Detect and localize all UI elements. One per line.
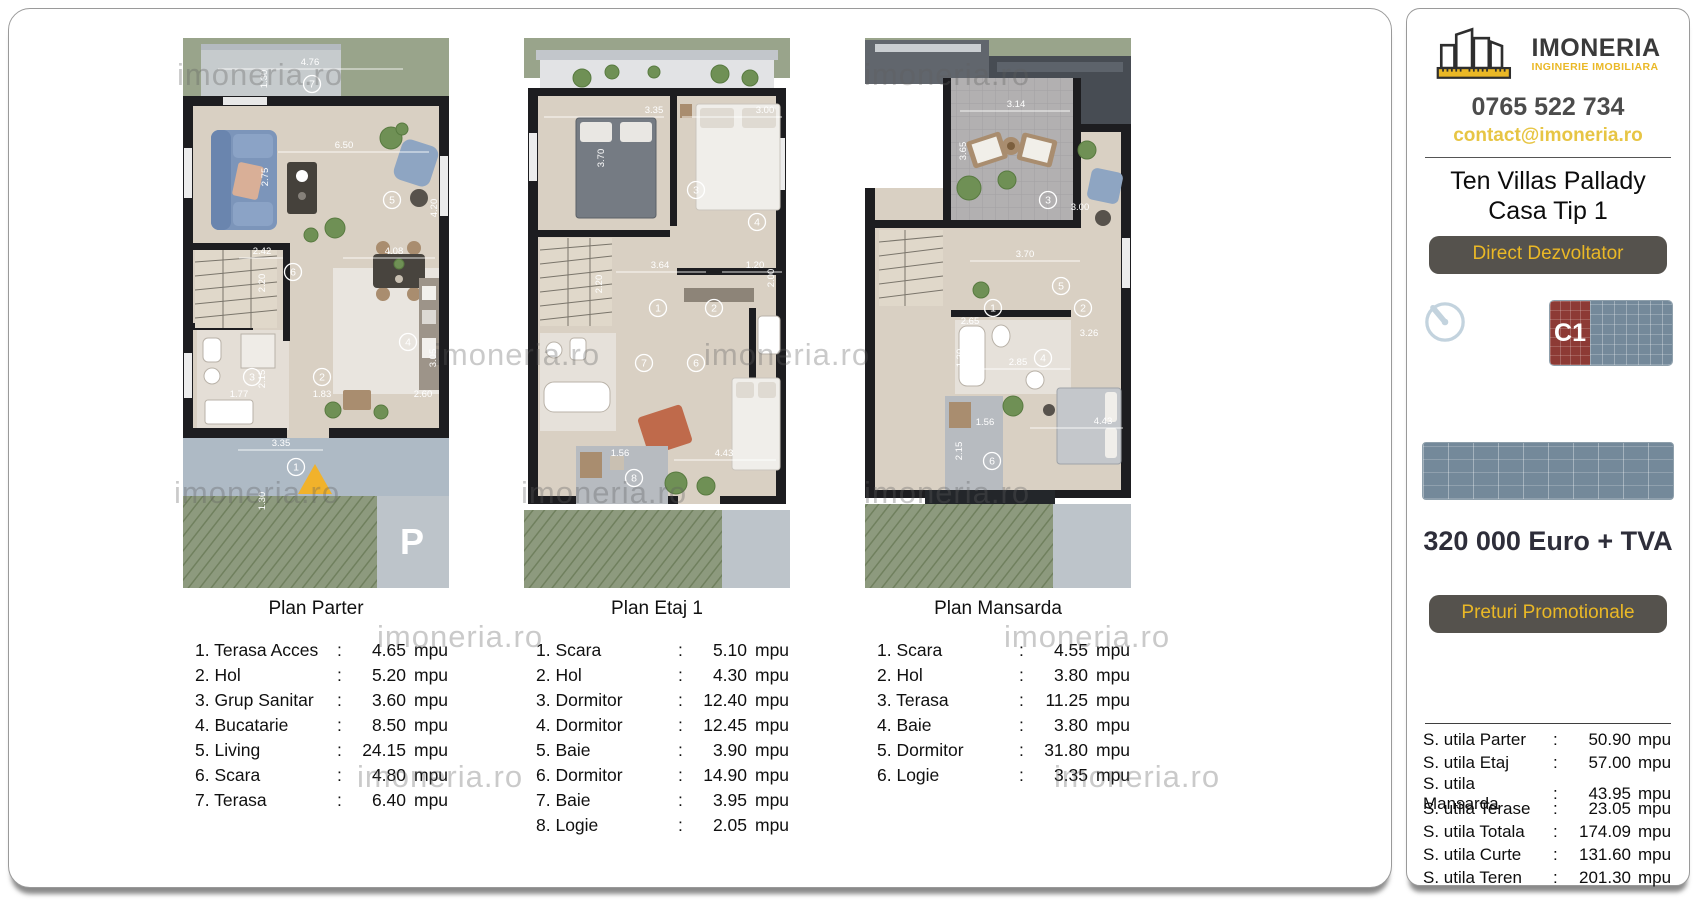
thumbnails-row: C1 <box>1421 300 1675 366</box>
bed-dark <box>576 118 656 218</box>
dimension-label: 2.75 <box>260 168 271 187</box>
room-list: 1. Scara:4.55mpu2. Hol:3.80mpu3. Terasa:… <box>865 638 1131 788</box>
room-list-item: 5. Living:24.15mpu <box>195 738 449 763</box>
room-list: 1. Scara:5.10mpu2. Hol:4.30mpu3. Dormito… <box>524 638 790 838</box>
room-list-item: 4. Dormitor:12.45mpu <box>536 713 790 738</box>
room-list-item: 8. Logie:2.05mpu <box>536 813 790 838</box>
dimension-label: 3.64 <box>651 260 670 271</box>
room-marker-number: 6 <box>290 267 296 279</box>
dimension-label: 4.76 <box>301 57 320 68</box>
divider <box>1425 723 1671 724</box>
room-list-item: 5. Dormitor:31.80mpu <box>877 738 1131 763</box>
room-marker-number: 1 <box>293 462 299 474</box>
unit-neighbors-plan <box>1590 301 1672 365</box>
dimension-label: 2.42 <box>253 246 272 257</box>
dimension-label: 3.70 <box>596 149 607 168</box>
side-paving <box>722 510 790 588</box>
dimension-label: 2.20 <box>594 275 605 294</box>
dimension-label: 3.00 <box>756 105 775 116</box>
room-marker-number: 3 <box>693 185 699 197</box>
room-marker-number: 2 <box>711 303 717 315</box>
buildings-ruler-icon <box>1436 25 1524 83</box>
surface-areas-table: S. utila Parter:50.90mpuS. utila Etaj:57… <box>1421 728 1675 889</box>
stairs-icon <box>879 230 943 306</box>
plan-column-parter: 75642314.761.306.502.754.202.424.082.203… <box>183 38 449 838</box>
room-list-item: 4. Baie:3.80mpu <box>877 713 1131 738</box>
room-list-item: 1. Scara:4.55mpu <box>877 638 1131 663</box>
room-marker-number: 1 <box>990 303 996 315</box>
plan-etaj-drawing: 341257683.353.003.703.641.202.202.001.56… <box>524 38 790 588</box>
dimension-label: 4.08 <box>385 246 404 257</box>
phone-number: 0765 522 734 <box>1421 93 1675 122</box>
room-list-item: 4. Bucatarie:8.50mpu <box>195 713 449 738</box>
room-marker-number: 5 <box>389 195 395 207</box>
room-marker-number: 8 <box>631 473 637 485</box>
room-list-item: 3. Terasa:11.25mpu <box>877 688 1131 713</box>
dimension-label: 1.77 <box>230 389 249 400</box>
room-list-item: 7. Terasa:6.40mpu <box>195 788 449 813</box>
dimension-label: 1.30 <box>259 70 270 89</box>
bed-bottom <box>732 378 780 470</box>
room-marker-number: 2 <box>1080 303 1086 315</box>
garden-grass <box>183 496 377 588</box>
dimension-label: 3.14 <box>1007 99 1026 110</box>
room-marker-number: 3 <box>1045 195 1051 207</box>
room-marker-number: 6 <box>989 456 995 468</box>
plan-parter-drawing: 75642314.761.306.502.754.202.424.082.203… <box>183 38 449 588</box>
dimension-label: 4.20 <box>429 199 440 218</box>
dimension-label: 2.15 <box>954 442 965 461</box>
dimension-label: 2.60 <box>414 389 433 400</box>
page: 75642314.761.306.502.754.202.424.082.203… <box>0 0 1700 900</box>
dimension-label: 3.35 <box>272 438 291 449</box>
room-marker-number: 6 <box>693 358 699 370</box>
area-row: S. utila Terase:23.05mpu <box>1423 797 1673 820</box>
area-row: S. utila Etaj:57.00mpu <box>1423 751 1673 774</box>
brand-logo: IMONERIA INGINERIE IMOBILIARA <box>1421 25 1675 83</box>
room-marker-number: 4 <box>1040 353 1046 365</box>
dimension-label: 4.43 <box>1094 416 1113 427</box>
area-row: S. utila Curte:131.60mpu <box>1423 843 1673 866</box>
dimension-label: 1.30 <box>955 349 966 368</box>
price-text: 320 000 Euro + TVA <box>1421 526 1675 557</box>
divider <box>1425 157 1671 158</box>
compass-icon <box>1423 300 1467 344</box>
kitchen-counter <box>419 278 439 390</box>
room-list-item: 6. Logie:3.35mpu <box>877 763 1131 788</box>
room-marker-number: 4 <box>405 337 411 349</box>
room-list-item: 6. Scara:4.80mpu <box>195 763 449 788</box>
brand-tagline: INGINERIE IMOBILIARA <box>1532 61 1661 73</box>
dimension-label: 3.00 <box>1071 202 1090 213</box>
room-marker-number: 1 <box>655 303 661 315</box>
room-marker-number: 4 <box>754 217 760 229</box>
dimension-label: 1.83 <box>313 389 332 400</box>
dimension-label: 2.15 <box>257 370 268 389</box>
unit-site-plan-thumbnail[interactable]: C1 <box>1549 300 1673 366</box>
site-plan-strip-thumbnail[interactable] <box>1422 442 1674 500</box>
dimension-label: 6.50 <box>335 140 354 151</box>
dimension-label: 3.05 <box>428 349 439 368</box>
info-sidebar: IMONERIA INGINERIE IMOBILIARA 0765 522 7… <box>1406 8 1690 886</box>
direct-dezvoltator-badge[interactable]: Direct Dezvoltator <box>1429 236 1667 274</box>
brand-name: IMONERIA <box>1532 35 1661 61</box>
room-list-item: 3. Grup Sanitar:3.60mpu <box>195 688 449 713</box>
dimension-label: 4.43 <box>715 448 734 459</box>
plan-title: Plan Etaj 1 <box>524 598 790 620</box>
email-link[interactable]: contact@imoneria.ro <box>1421 125 1675 147</box>
area-row: S. utila Mansarda:43.95mpu <box>1423 774 1673 797</box>
listing-title: Ten Villas Pallady Casa Tip 1 <box>1421 166 1675 226</box>
preturi-promotionale-button[interactable]: Preturi Promotionale <box>1429 595 1667 633</box>
room-list-item: 5. Baie:3.90mpu <box>536 738 790 763</box>
dimension-label: 2.85 <box>1009 357 1028 368</box>
dimension-label: 2.65 <box>961 316 980 327</box>
plan-column-mansarda: 3512463.143.653.003.702.653.262.851.301.… <box>865 38 1131 838</box>
dimension-label: 1.30 <box>257 492 268 511</box>
plan-column-etaj: 341257683.353.003.703.641.202.202.001.56… <box>524 38 790 838</box>
room-list-item: 1. Scara:5.10mpu <box>536 638 790 663</box>
dimension-label: 3.65 <box>958 142 969 161</box>
room-list: 1. Terasa Acces:4.65mpu2. Hol:5.20mpu3. … <box>183 638 449 813</box>
area-row: S. utila Parter:50.90mpu <box>1423 728 1673 751</box>
room-marker-number: 5 <box>1058 281 1064 293</box>
room-list-item: 2. Hol:3.80mpu <box>877 663 1131 688</box>
listing-title-line2: Casa Tip 1 <box>1421 196 1675 226</box>
plan-mansarda-drawing: 3512463.143.653.003.702.653.262.851.301.… <box>865 38 1131 588</box>
room-list-item: 7. Baie:3.95mpu <box>536 788 790 813</box>
parking-label: P <box>400 521 424 562</box>
bathroom-7 <box>540 333 616 431</box>
room-marker-number: 3 <box>249 372 255 384</box>
room-list-item: 3. Dormitor:12.40mpu <box>536 688 790 713</box>
room-list-item: 2. Hol:4.30mpu <box>536 663 790 688</box>
coffee-table <box>287 162 317 214</box>
bed-white <box>696 104 780 210</box>
side-paving <box>1053 504 1131 588</box>
room-marker-number: 7 <box>309 79 315 91</box>
plan-title: Plan Mansarda <box>865 598 1131 620</box>
dimension-label: 2.20 <box>257 274 268 293</box>
floor-plans-panel: 75642314.761.306.502.754.202.424.082.203… <box>8 8 1392 888</box>
plan-title: Plan Parter <box>183 598 449 620</box>
dimension-label: 3.70 <box>1016 249 1035 260</box>
dimension-label: 2.00 <box>766 269 777 288</box>
dimension-label: 3.35 <box>645 105 664 116</box>
room-list-item: 1. Terasa Acces:4.65mpu <box>195 638 449 663</box>
area-row: S. utila Totala:174.09mpu <box>1423 820 1673 843</box>
plans-row: 75642314.761.306.502.754.202.424.082.203… <box>183 38 1131 838</box>
area-row: S. utila Teren:201.30mpu <box>1423 866 1673 889</box>
room-marker-number: 5 <box>767 328 773 340</box>
unit-code-label: C1 <box>1550 301 1590 365</box>
room-list-item: 6. Dormitor:14.90mpu <box>536 763 790 788</box>
room-marker-number: 7 <box>641 358 647 370</box>
dimension-label: 1.20 <box>746 260 765 271</box>
dimension-label: 3.26 <box>1080 328 1099 339</box>
room-marker-number: 2 <box>319 372 325 384</box>
room-list-item: 2. Hol:5.20mpu <box>195 663 449 688</box>
dimension-label: 1.56 <box>976 417 995 428</box>
listing-title-line1: Ten Villas Pallady <box>1421 166 1675 196</box>
dimension-label: 1.56 <box>611 448 630 459</box>
